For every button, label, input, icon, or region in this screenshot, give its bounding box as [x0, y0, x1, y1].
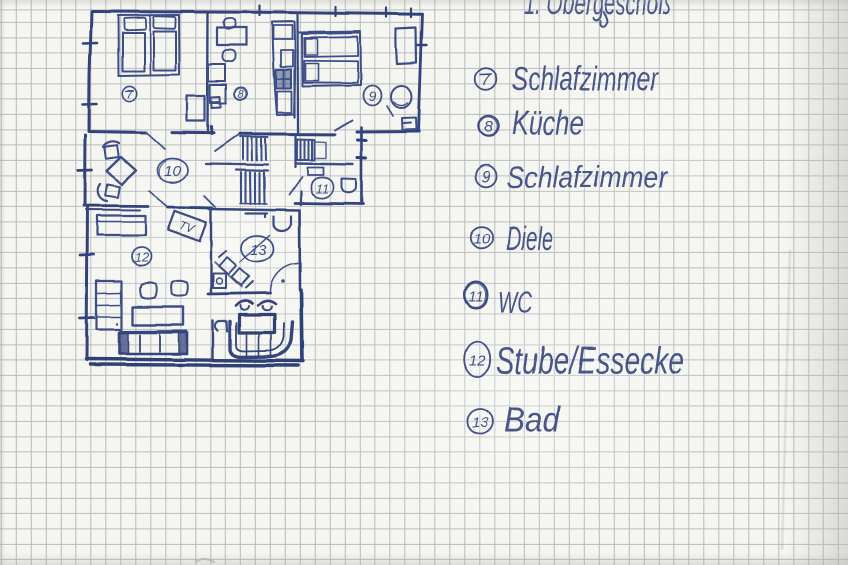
svg-text:11: 11: [316, 182, 330, 197]
svg-text:Diele: Diele: [506, 220, 553, 257]
svg-text:Bad: Bad: [504, 399, 561, 440]
svg-text:11: 11: [468, 289, 484, 306]
svg-text:12: 12: [134, 250, 149, 265]
svg-text:9: 9: [482, 169, 491, 186]
svg-text:8: 8: [238, 89, 245, 101]
svg-text:Schlafzimmer: Schlafzimmer: [512, 61, 659, 99]
svg-text:Stube/Essecke: Stube/Essecke: [496, 341, 684, 383]
svg-text:12: 12: [468, 353, 485, 370]
svg-text:Küche: Küche: [512, 105, 584, 143]
svg-text:10: 10: [164, 163, 181, 180]
svg-text:13: 13: [251, 242, 268, 259]
svg-text:7: 7: [482, 72, 492, 89]
svg-text:9: 9: [368, 88, 376, 104]
svg-text:10: 10: [473, 231, 490, 248]
svg-text:Schlafzimmer: Schlafzimmer: [507, 160, 668, 195]
svg-text:8: 8: [484, 119, 493, 136]
svg-text:13: 13: [472, 415, 489, 432]
svg-text:WC: WC: [498, 287, 532, 320]
